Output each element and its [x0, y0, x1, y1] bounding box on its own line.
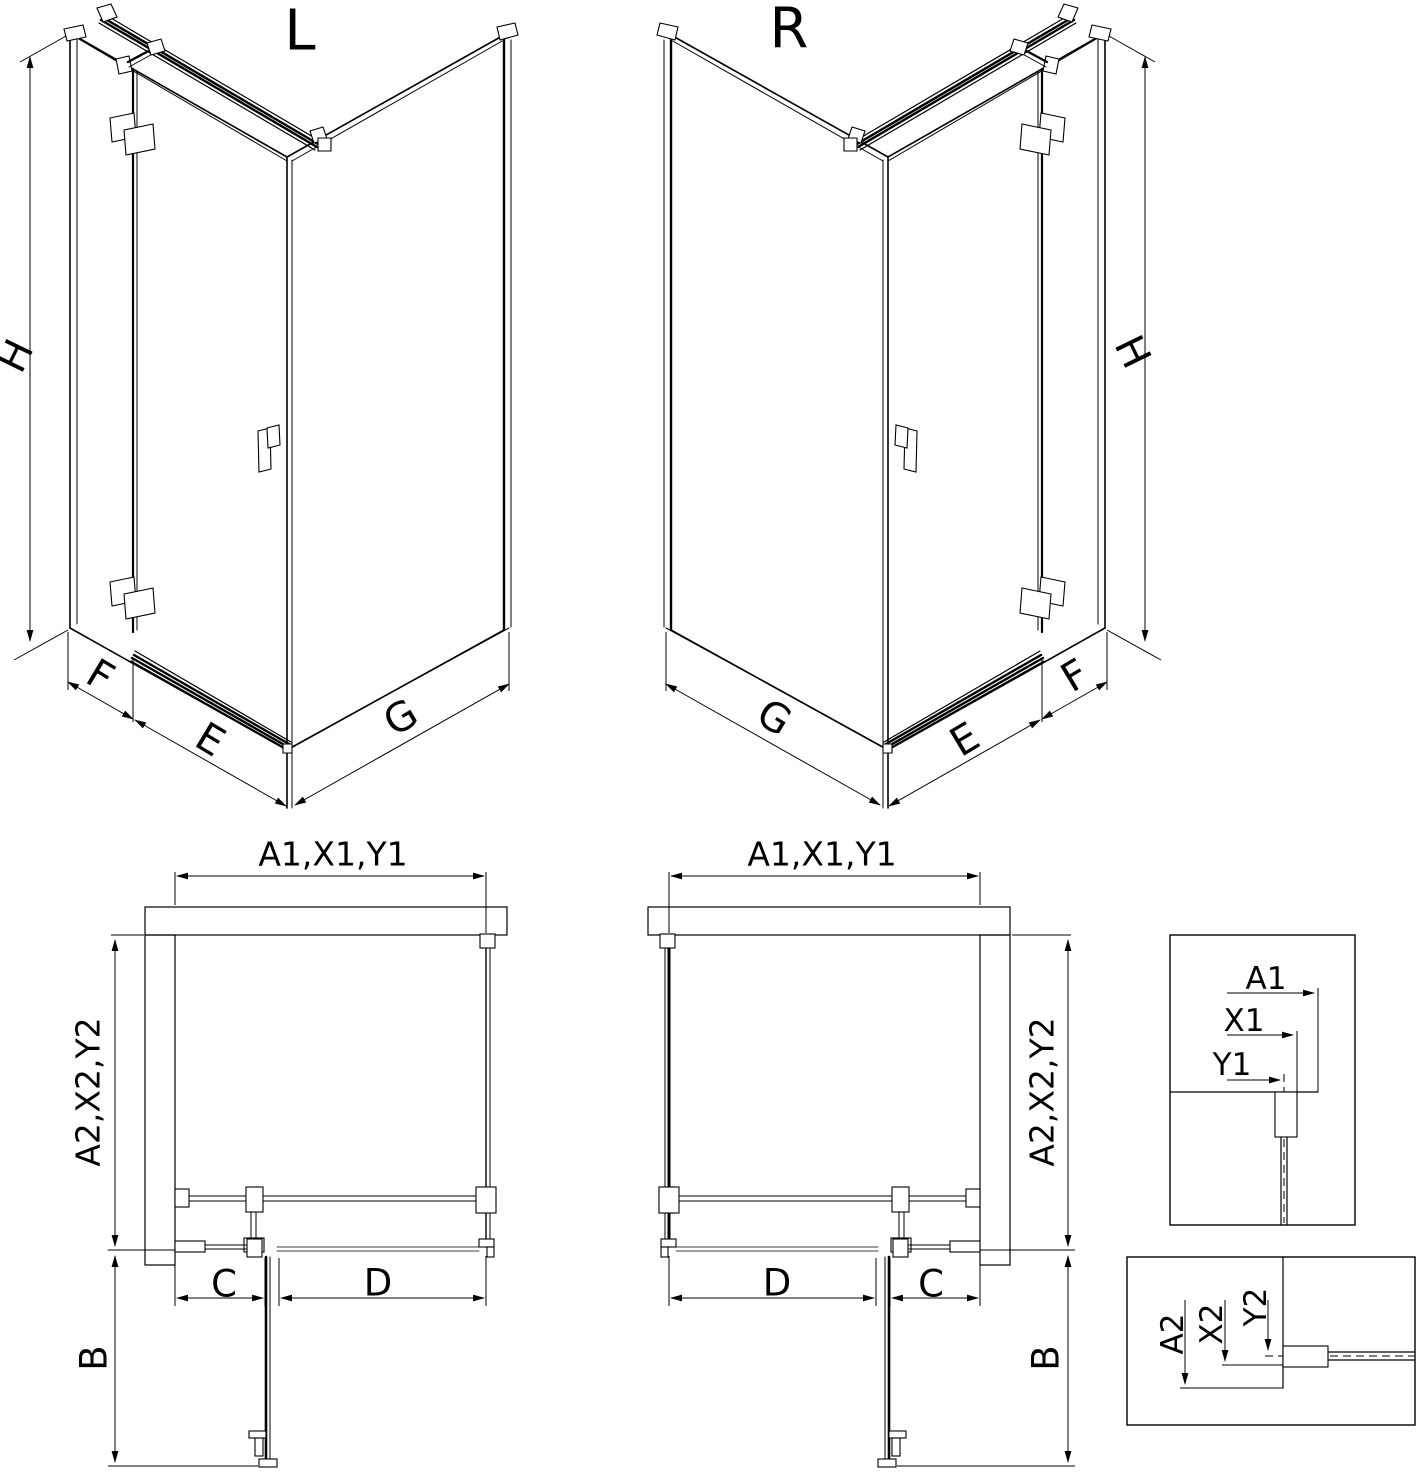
label-plan-swing-right: B [1025, 1345, 1068, 1370]
iso-view-right: R H F E G [657, 0, 1161, 808]
detail-view-bottom: A2 X2 Y2 [1127, 1257, 1415, 1425]
plan-dimension-lines-right [669, 872, 1075, 1466]
label-panel-right: G [749, 690, 799, 745]
label-plan-opening-left: D [364, 1262, 393, 1305]
label-detail-y1: Y1 [1212, 1047, 1252, 1083]
plan-door-handle-right [889, 1431, 906, 1438]
label-panel-left: G [376, 690, 426, 745]
label-plan-width-right: A1,X1,Y1 [747, 835, 896, 874]
label-door-left: E [187, 714, 232, 766]
label-detail-a2: A2 [1155, 1314, 1191, 1355]
label-version-right: R [770, 0, 809, 62]
detail-wall-profile [1275, 1092, 1297, 1137]
label-detail-x1: X1 [1224, 1003, 1265, 1039]
label-fixed-left: F [78, 650, 121, 701]
technical-drawing: L H F E G R H F E G A1,X1,Y1 A2,X2,Y2 B … [0, 0, 1426, 1476]
label-plan-fixed-right: C [918, 1263, 944, 1306]
label-version-left: L [284, 0, 315, 64]
label-plan-fixed-left: C [211, 1263, 237, 1306]
label-plan-swing-left: B [73, 1345, 116, 1370]
iso-view-left: L H F E G [0, 0, 518, 808]
drawing-sheet: L H F E G R H F E G A1,X1,Y1 A2,X2,Y2 B … [0, 0, 1426, 1476]
plan-front-and-door-right [676, 1239, 1047, 1467]
label-detail-a1: A1 [1246, 961, 1287, 997]
label-plan-depth-right: A2,X2,Y2 [1023, 1017, 1062, 1166]
label-height-left: H [0, 332, 43, 379]
detail-view-top: A1 X1 Y1 [1170, 935, 1355, 1225]
label-plan-width-left: A1,X1,Y1 [258, 835, 407, 874]
label-height-right: H [1105, 328, 1160, 375]
detail-wall-profile-2 [1283, 1346, 1328, 1367]
label-plan-depth-left: A2,X2,Y2 [69, 1017, 108, 1166]
plan-support-bar-right [659, 1187, 980, 1252]
plan-walls-hatched-right [648, 907, 1010, 1265]
label-fixed-right: F [1053, 650, 1096, 701]
plan-view-right: A1,X1,Y1 A2,X2,Y2 B C D [648, 835, 1075, 1468]
label-plan-opening-right: D [763, 1262, 792, 1305]
label-detail-y2: Y2 [1238, 1288, 1274, 1328]
label-detail-x2: X2 [1194, 1304, 1230, 1345]
label-door-right: E [942, 714, 987, 766]
plan-view-left: A1,X1,Y1 A2,X2,Y2 B C D [69, 835, 508, 1468]
